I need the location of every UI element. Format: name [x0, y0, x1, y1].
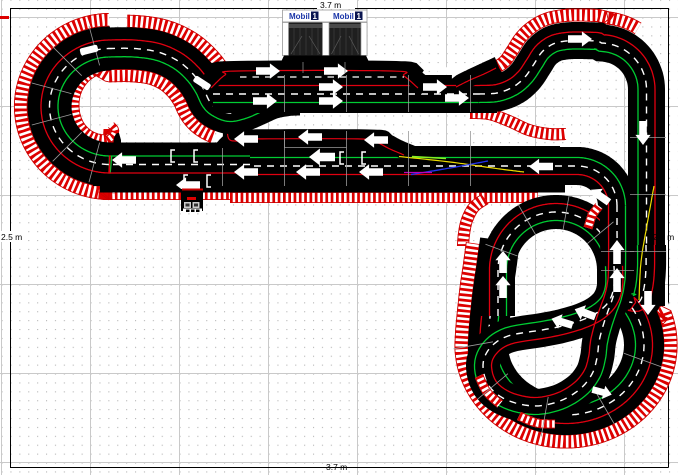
svg-text:3.7 m: 3.7 m — [320, 0, 341, 10]
svg-text:1: 1 — [313, 12, 318, 21]
svg-text:2.5 m: 2.5 m — [653, 232, 674, 242]
svg-text:3.7 m: 3.7 m — [326, 462, 347, 472]
svg-text:Mobil: Mobil — [333, 12, 354, 21]
svg-text:2.5 m: 2.5 m — [1, 232, 22, 242]
svg-text:Mobil: Mobil — [289, 12, 310, 21]
svg-text:1: 1 — [357, 12, 362, 21]
